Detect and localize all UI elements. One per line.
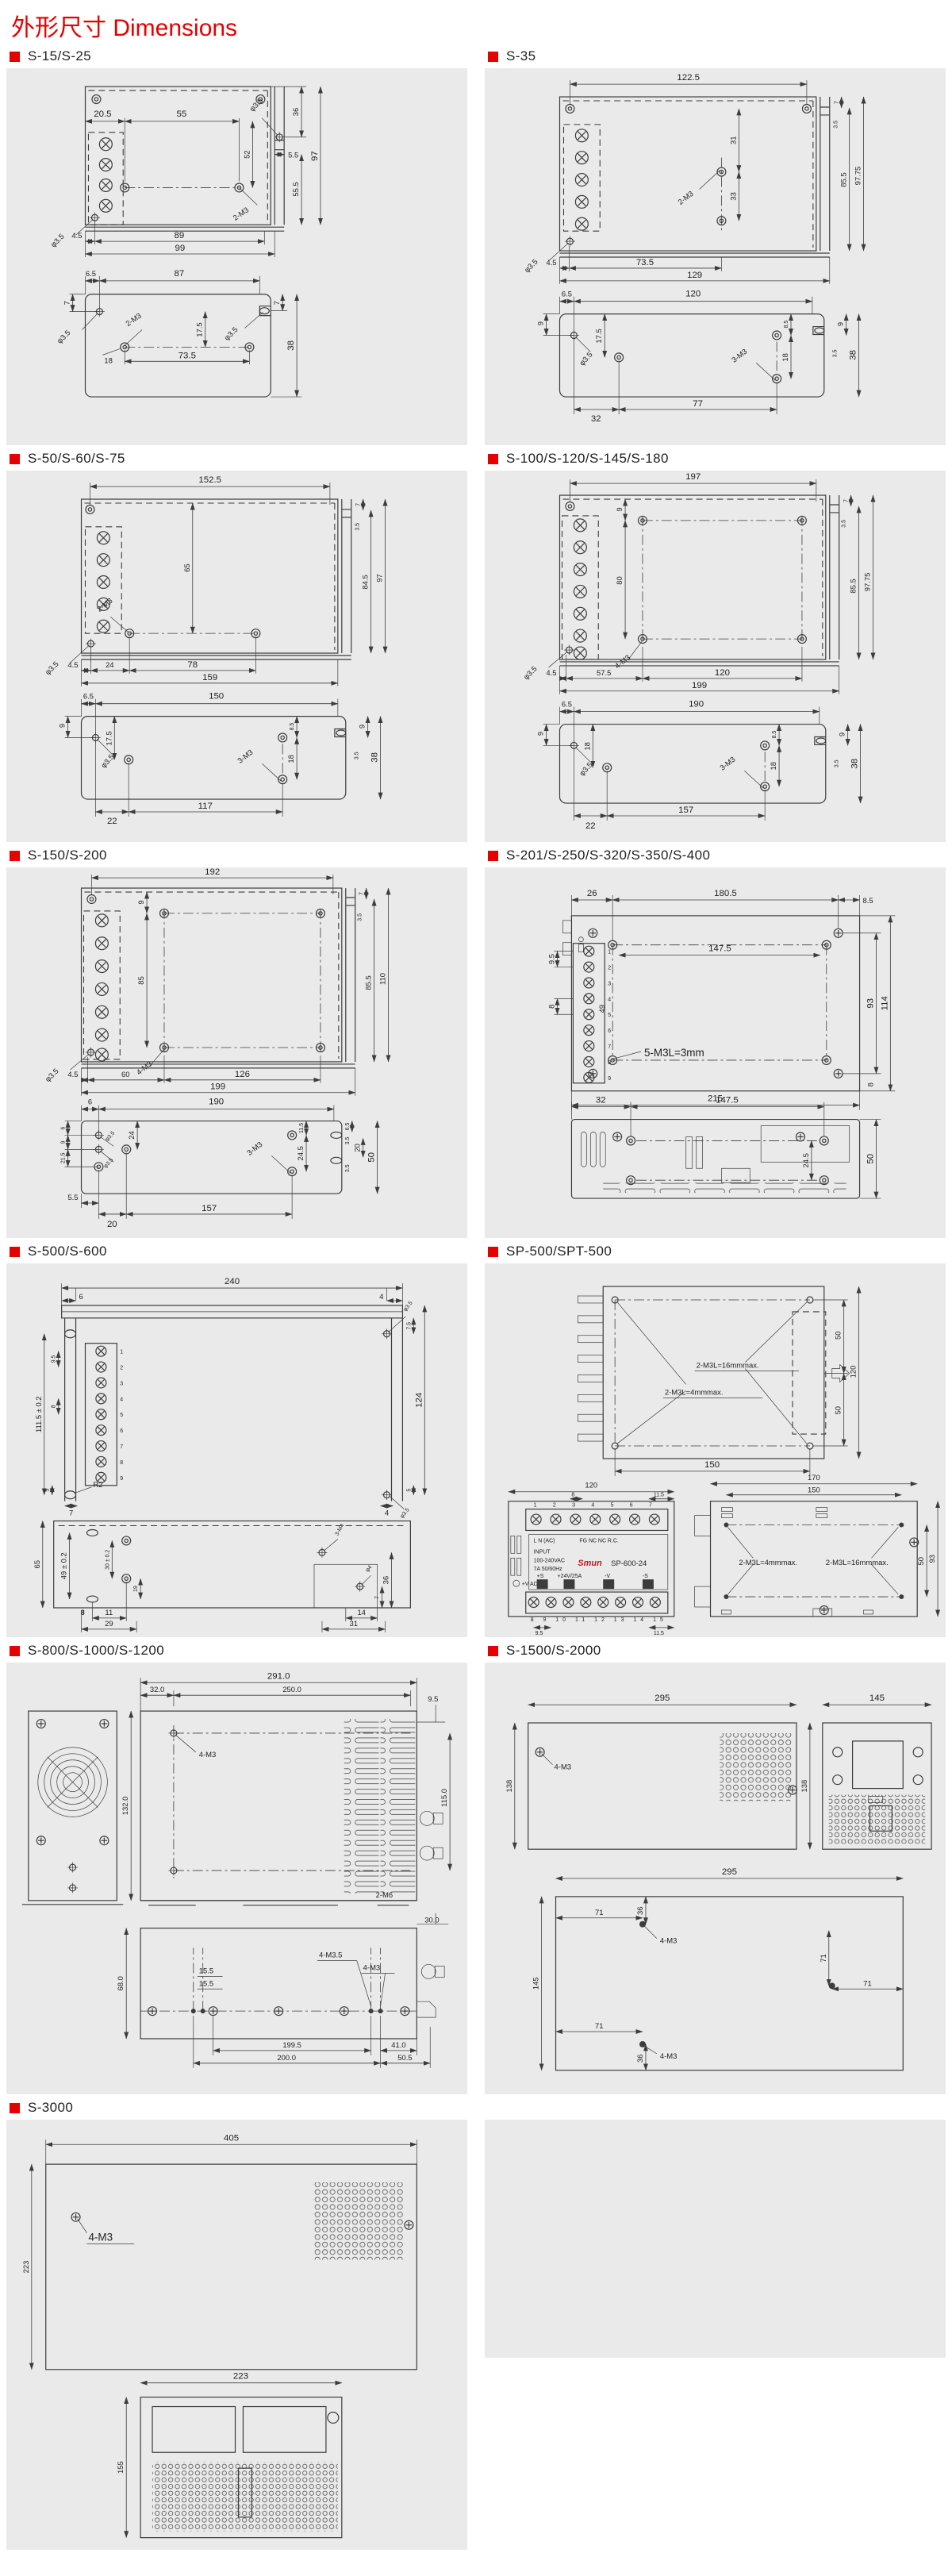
top-view: 291.0 32.0 250.0 9.5 4-M3 115.0 2-M6 [140, 1671, 450, 1905]
drawing-shape [550, 243, 569, 260]
drawing-shape [140, 1928, 416, 2039]
red-square-bullet [488, 1247, 498, 1257]
dim-label: 8 [120, 1460, 123, 1466]
section-s35: S-35 122.5 31 33 2-M3 7 3.5 85.5 97.75 φ… [485, 44, 946, 445]
drawing-shape [627, 1136, 635, 1145]
dim-label: 7 [359, 892, 365, 895]
drawing-shape [201, 2009, 205, 2013]
dim-label: 38 [286, 340, 296, 351]
drawing-shape [65, 1330, 76, 1338]
dim-label: 5 [608, 1013, 611, 1018]
drawing-shape [563, 1579, 574, 1589]
dim-label: 2-M3 [232, 206, 251, 222]
drawing-shape [542, 1754, 553, 1765]
drawing-shape [720, 1733, 793, 1801]
drawing-shape [83, 313, 98, 330]
dim-label: 117 [198, 802, 213, 811]
drawing-shape [578, 944, 583, 952]
drawing-shape [816, 738, 826, 744]
drawing-shape [84, 892, 338, 1059]
dim-label: 3.5 [345, 1136, 351, 1144]
drawing-shape [560, 662, 839, 666]
drawing-panel: 197 9 80 4-M3 7 3.5 85.5 97.75 φ3.5 4.5 … [485, 471, 946, 842]
drawing-shape [584, 1009, 594, 1020]
drawing-shape [816, 1514, 827, 1518]
dim-label: 6 [79, 1293, 83, 1301]
dim-label: 9 [137, 900, 146, 904]
drawing-shape [584, 994, 594, 1004]
drawing-shape [563, 1598, 574, 1608]
drawing-shape [551, 1514, 561, 1524]
drawing-shape [381, 1719, 416, 1894]
dim-label: 29 [105, 1620, 113, 1628]
dim-label: 71 [820, 1954, 828, 1963]
dim-label: 4.5 [71, 232, 82, 240]
drawing-shape [313, 2182, 404, 2259]
dim-label: 3 [608, 981, 611, 986]
red-square-bullet [488, 851, 498, 861]
dim-label: 4 [608, 997, 611, 1002]
dim-label: 57.5 [597, 669, 611, 678]
drawing-shape [834, 1069, 843, 1078]
dim-label: 9 [120, 1476, 123, 1482]
dim-label: 4.5 [546, 259, 556, 267]
drawing-shape [584, 1056, 594, 1067]
drawing-shape [616, 1598, 626, 1608]
fan-view: 132.0 [22, 1711, 131, 1905]
drawing-shape [913, 1747, 923, 1757]
drawing-shape [574, 519, 586, 532]
drawing-shape [813, 1300, 848, 1446]
drawing-shape [584, 962, 594, 972]
drawing-shape [571, 895, 859, 940]
drawing-panel: 405 223 4-M3 223 155 [6, 2120, 467, 2550]
dim-label: 93 [928, 1555, 937, 1563]
dim-label: 4-M3 [660, 1937, 678, 1946]
drawing-s100: 197 9 80 4-M3 7 3.5 85.5 97.75 φ3.5 4.5 … [485, 471, 946, 842]
drawing-shape [99, 199, 112, 212]
dim-label: 4-M3 [660, 2052, 678, 2061]
dim-label: 55 [176, 110, 186, 119]
dim-label: 7 [120, 1444, 123, 1450]
drawing-shape [830, 495, 839, 659]
red-square-bullet [10, 851, 20, 861]
drawing-shape [566, 502, 574, 511]
dim-label: 223 [22, 2261, 31, 2274]
drawing-shape [695, 1586, 711, 1607]
section-header: S-1500/S-2000 [488, 1639, 946, 1663]
dim-label: 24 [106, 661, 114, 670]
section-header: S-201/S-250/S-320/S-350/S-400 [488, 844, 946, 867]
dim-label: φ3.5 [578, 761, 594, 779]
dim-label: 8 [571, 1493, 574, 1498]
top-view: 240 6 4 φ3.5 7.5 123456789 9.5 8 111.5 ±… [35, 1277, 425, 1520]
drawing-shape [575, 174, 588, 186]
drawing-shape [615, 1300, 810, 1446]
dim-label: φ3.5 [402, 1301, 413, 1313]
drawing-shape [125, 330, 142, 346]
drawing-shape [96, 1362, 106, 1372]
drawing-shape [152, 2407, 235, 2453]
dim-label: φ3.5 [523, 258, 539, 275]
model-label: SP-600-24 [611, 1559, 647, 1568]
drawing-shape [829, 1982, 835, 1989]
section-empty [485, 2096, 946, 2550]
dim-label: 14 [357, 1609, 366, 1617]
drawing-shape [67, 1882, 78, 1893]
drawing-shape [362, 1973, 395, 2006]
drawing-shape [95, 1048, 108, 1061]
drawing-shape [71, 645, 90, 663]
drawing-shape [99, 159, 112, 171]
dim-label: 7 [375, 1596, 381, 1599]
drawing-shape [816, 1508, 827, 1512]
dim-label: 3-M3 [236, 748, 255, 766]
drawing-shape [570, 1514, 581, 1524]
dim-label: 93 [866, 998, 875, 1009]
drawing-shape [864, 1610, 873, 1614]
drawing-shape [344, 1719, 379, 1894]
drawing-shape [697, 1136, 703, 1168]
dim-label: 3.5 [833, 349, 839, 357]
dim-label: 199 [210, 1082, 225, 1092]
dim-label: 120 [585, 1482, 597, 1490]
dim-label: 147.5 [716, 1096, 739, 1105]
dim-label: 1 2 3 4 5 6 7 [534, 1503, 652, 1509]
dim-label: 190 [209, 1098, 224, 1107]
dim-label: 197 [685, 472, 701, 482]
dim-label: -S [643, 1574, 648, 1579]
dim-label: 26 [587, 889, 597, 898]
dim-label: 150 [704, 1460, 720, 1470]
dim-label: 9.5 [428, 1695, 438, 1704]
dim-label: 85.5 [850, 579, 858, 593]
dim-label: 7 [69, 1509, 73, 1518]
section-s100: S-100/S-120/S-145/S-180 197 9 80 4-M3 7 … [485, 447, 946, 842]
dim-label: 138 [505, 1780, 514, 1793]
drawing-shape [97, 576, 109, 589]
drawing-shape [82, 656, 351, 659]
drawing-shape [122, 1574, 131, 1583]
drawing-shape [603, 1182, 846, 1193]
drawing-shape [575, 129, 588, 142]
drawing-shape [95, 914, 108, 927]
dim-label: +S [537, 1574, 544, 1579]
drawing-shape [433, 1813, 443, 1824]
dim-label: 18 [104, 356, 112, 365]
drawing-shape [140, 1901, 416, 1905]
dim-label: 30 ± 0.2 [105, 1550, 110, 1570]
drawing-shape [164, 909, 321, 1052]
drawing-sp500: 2-M3L=16mmmax. 2-M3L=4mmmax. 50 50 120 1… [485, 1263, 946, 1637]
dim-label: 115.0 [440, 1789, 449, 1807]
drawing-shape [243, 2407, 325, 2453]
dim-label: 31 [349, 1620, 358, 1628]
dim-label: φ3.5 [44, 1067, 60, 1084]
drawing-shape [570, 479, 816, 502]
drawing-shape [96, 1441, 106, 1451]
dim-label: 7A 50/60Hz [534, 1567, 562, 1572]
drawing-shape [562, 101, 812, 248]
drawing-panel: 132.0 291.0 32.0 250.0 9.5 4-M3 115.0 2-… [6, 1663, 467, 2094]
drawing-shape [617, 1302, 807, 1444]
top-view: 192 9 85 4-M3 7 3.5 85.5 110 φ3.5 4.5 60… [44, 867, 388, 1096]
drawing-shape [331, 1132, 342, 1138]
drawing-shape [578, 1414, 603, 1421]
red-square-bullet [10, 52, 20, 62]
dim-label: 4-M3 [88, 2232, 113, 2243]
drawing-shape [560, 97, 816, 251]
drawing-shape [574, 629, 586, 642]
dim-label: 19 [133, 1586, 139, 1592]
drawing-shape [513, 1580, 520, 1586]
dim-label: 7.5 [406, 1322, 412, 1330]
dim-label: 9.5 [535, 1631, 543, 1636]
section-s201: S-201/S-250/S-320/S-350/S-400 147.5 49 5… [485, 844, 946, 1238]
drawing-shape [913, 1775, 923, 1785]
drawing-shape [36, 1720, 45, 1728]
section-label: S-500/S-600 [28, 1244, 107, 1259]
drawing-shape [96, 1409, 106, 1420]
drawing-shape [853, 1741, 904, 1789]
dim-label: 126 [235, 1070, 250, 1079]
dim-label: 24.5 [297, 1146, 305, 1160]
drawing-shape [100, 1836, 109, 1845]
dim-label: 2-M6 [376, 1891, 393, 1900]
top-view: 122.5 31 33 2-M3 7 3.5 85.5 97.75 φ3.5 4… [523, 73, 863, 284]
dim-label: 84.5 [362, 575, 370, 589]
dim-label: 38 [370, 752, 380, 763]
drawing-shape [630, 1514, 640, 1524]
drawing-shape [721, 1508, 732, 1512]
dim-label: 4.5 [67, 661, 78, 670]
dim-label: 60 [121, 1071, 130, 1079]
drawing-shape [578, 937, 583, 942]
dim-label: 32.0 [150, 1686, 164, 1694]
dim-label: 36 [292, 108, 301, 116]
dim-label: 8 9 10 11 12 13 14 15 [531, 1617, 663, 1623]
dim-label: 3.5 [345, 1164, 351, 1172]
drawing-shape [511, 1558, 515, 1575]
drawing-shape [262, 763, 281, 781]
dim-label: φ3.5 [522, 665, 539, 682]
drawing-shape [175, 1735, 196, 1752]
dim-label: 3-M4 [335, 1523, 346, 1536]
drawing-shape [85, 527, 121, 633]
dim-label: 138 [800, 1780, 809, 1793]
dim-label: φ4 [365, 1564, 374, 1573]
dim-label: 147.5 [708, 944, 731, 954]
dim-label: 190 [689, 700, 704, 709]
dim-label: 111.5 ± 0.2 [35, 1396, 44, 1432]
bottom-view: 68.0 15.5 15.5 4-M3.5 4-M3 30.0 199.5 41… [117, 1913, 448, 2068]
drawing-shape [102, 348, 120, 355]
drawing-s35: 122.5 31 33 2-M3 7 3.5 85.5 97.75 φ3.5 4… [485, 68, 946, 445]
dim-label: 4 [385, 1509, 389, 1518]
drawing-panel: 147.5 49 5-M3L=3mm 123456789 9.5 8 26 18… [485, 867, 946, 1238]
section-label: S-100/S-120/S-145/S-180 [506, 451, 669, 467]
drawing-shape [85, 227, 284, 231]
dim-label: 1 [120, 1350, 123, 1355]
dim-label: φ3.5 [103, 1157, 115, 1169]
drawing-shape [152, 2462, 338, 2532]
page-title: 外形尺寸 Dimensions [11, 8, 952, 43]
drawing-shape [331, 1157, 342, 1163]
dim-label: 4 [120, 1397, 123, 1402]
dim-label: 33 [729, 192, 738, 201]
dim-label: 3.5 [834, 121, 839, 129]
drawing-shape [643, 1579, 654, 1589]
section-label: S-50/S-60/S-75 [28, 451, 125, 467]
drawing-shape [84, 503, 334, 650]
dim-label: 52 [243, 150, 251, 159]
bottom-view: 6.5 120 9 φ3.5 17.5 8.5 18 3-M3 3.5 9 38… [537, 290, 859, 424]
dim-label: 80 [616, 576, 624, 585]
drawing-shape [584, 978, 594, 988]
section-header-spacer [488, 2096, 946, 2120]
drawing-shape [563, 125, 600, 231]
drawing-shape [95, 982, 108, 995]
drawing-shape [324, 1539, 338, 1551]
dim-label: 9 [537, 732, 546, 736]
drawing-shape [820, 1605, 828, 1614]
drawing-shape [110, 617, 128, 632]
drawing-shape [560, 253, 830, 257]
dim-label: 85.5 [840, 172, 849, 186]
drawing-shape [526, 1509, 668, 1531]
dim-label: 2-M3L=4mmmax. [665, 1388, 724, 1397]
drawing-shape [613, 1132, 622, 1141]
drawing-shape [584, 1025, 594, 1036]
drawing-shape [615, 353, 624, 362]
dim-label: 2-M3L=16mmmax. [697, 1362, 759, 1371]
dim-label: 85 [137, 976, 146, 985]
drawing-shape [86, 505, 94, 513]
section-header: S-500/S-600 [10, 1240, 467, 1263]
panel-grid: S-15/S-25 2-M3 20.5 55 52 φ3.5 36 97 5.5… [6, 44, 946, 2550]
dim-label: 24 [128, 1131, 136, 1140]
dim-label: 8 [548, 1005, 557, 1009]
drawing-shape [574, 541, 586, 554]
dim-label: 9 [839, 732, 847, 736]
dim-label: 73.5 [178, 351, 196, 360]
brand-logo: Smun [578, 1559, 602, 1568]
drawing-shape [650, 1598, 660, 1608]
dim-label: 38 [849, 350, 858, 360]
drawing-shape [288, 1131, 297, 1140]
section-s500: S-500/S-600 240 6 4 φ3.5 7.5 123456789 9… [6, 1240, 467, 1637]
dim-label: 11 [105, 1609, 113, 1617]
section-s1500: S-1500/S-2000 295 138 4-M3 145 138 295 1… [485, 1639, 946, 2094]
dim-label: 36 [636, 1907, 645, 1916]
dim-label: 4-M3.5 [319, 1951, 342, 1959]
dim-label: 5.5 [67, 1194, 78, 1202]
dim-label: 7 [63, 301, 72, 305]
drawing-shape [342, 499, 351, 653]
drawing-shape [633, 1598, 643, 1608]
drawing-shape [590, 1132, 596, 1167]
dim-label: 21.5 [61, 1152, 67, 1163]
drawing-shape [262, 118, 278, 136]
dim-label: 17.5 [105, 731, 113, 745]
drawing-shape [546, 1598, 556, 1608]
dim-label: 3.5 [842, 520, 847, 528]
drawing-shape [378, 2009, 383, 2013]
dim-label: 295 [722, 1867, 737, 1877]
section-sp500: SP-500/SPT-500 2-M3L=16mmmax. 2-M3L=4mmm… [485, 1240, 946, 1637]
dim-label: 18 [770, 762, 778, 770]
drawing-s1500: 295 138 4-M3 145 138 295 145 36 71 4-M3 … [485, 1663, 946, 2094]
dim-label: 110 [379, 973, 388, 985]
drawing-shape [574, 563, 586, 576]
dim-label: 200.0 [277, 2054, 296, 2063]
drawing-s500: 240 6 4 φ3.5 7.5 123456789 9.5 8 111.5 ±… [6, 1263, 467, 1637]
drawing-shape [598, 1598, 608, 1608]
dim-label: 8 [52, 1405, 57, 1408]
drawing-shape [46, 2140, 417, 2164]
dim-label: 9.5 [52, 1355, 57, 1363]
drawing-shape [744, 771, 763, 788]
dim-label: φ3.5 [56, 329, 72, 345]
section-label: S-201/S-250/S-320/S-350/S-400 [506, 848, 710, 863]
drawing-shape [578, 1316, 603, 1323]
drawing-shape [209, 2007, 217, 2016]
dim-label: φ3.5 [99, 753, 116, 771]
dim-label: 9 [359, 725, 367, 729]
dim-label: 32 [591, 414, 601, 424]
drawing-shape [556, 1897, 904, 2070]
dim-label: 71 [595, 2022, 604, 2031]
dim-label: 157 [678, 805, 693, 815]
drawing-shape [700, 171, 720, 190]
drawing-shape [578, 1434, 603, 1441]
drawing-shape [75, 1487, 92, 1494]
dim-label: 3.5 [355, 523, 361, 531]
dim-label: -V [605, 1574, 610, 1579]
front-view: 120 8 11.5 1 2 3 4 5 6 7 L N (AC) FG NC … [509, 1482, 674, 1636]
dim-label: 240 [225, 1277, 240, 1286]
drawing-shape [537, 1579, 548, 1589]
dim-label: 7 [273, 301, 282, 305]
dim-label: 6.5 [562, 290, 572, 299]
dim-label: 17.5 [196, 322, 205, 336]
dim-label: 180.5 [714, 889, 737, 898]
dim-label: 3.5 [358, 913, 363, 921]
drawing-shape [369, 2009, 374, 2013]
top-view: 295 138 4-M3 145 138 [505, 1694, 931, 1849]
drawing-shape [140, 1948, 416, 2012]
dim-label: 18 [781, 353, 790, 362]
dim-label: 6 [61, 1126, 67, 1129]
dim-label: 77 [693, 399, 703, 409]
section-s15-s25: S-15/S-25 2-M3 20.5 55 52 φ3.5 36 97 5.5… [6, 44, 467, 445]
drawing-shape [575, 195, 588, 208]
red-square-bullet [488, 454, 498, 464]
drawing-shape [95, 740, 282, 817]
dim-label: 4 [379, 1293, 383, 1301]
drawing-shape [82, 717, 346, 799]
section-s3000: S-3000 405 223 4-M3 223 155 [6, 2096, 467, 2550]
bottom-view: 32 147.5 24.5 50 [571, 1096, 881, 1198]
drawing-shape [574, 585, 586, 598]
drawing-panel: 2-M3 20.5 55 52 φ3.5 36 97 5.5 55.5 φ3.5… [6, 68, 467, 445]
drawing-shape [603, 763, 612, 772]
section-s800: S-800/S-1000/S-1200 132.0 291.0 32.0 250… [6, 1639, 467, 2094]
drawing-shape [100, 1720, 109, 1728]
drawing-shape [259, 308, 269, 314]
dim-label: 89 [175, 231, 185, 240]
dim-label: 2-M3 [125, 312, 144, 329]
